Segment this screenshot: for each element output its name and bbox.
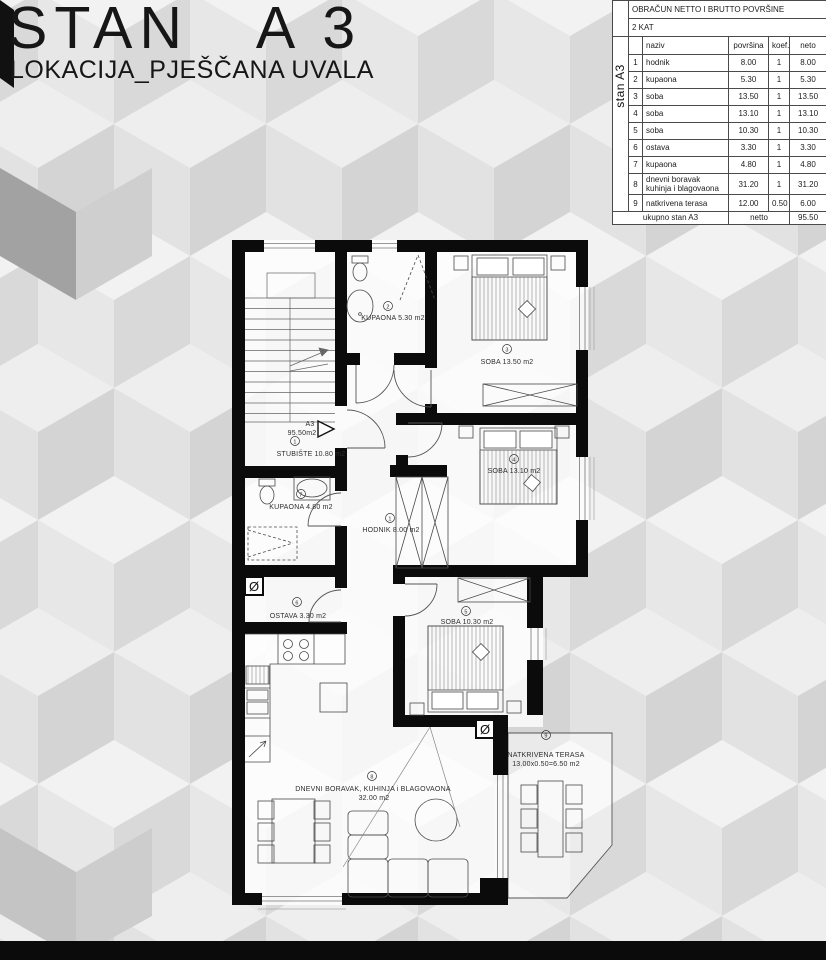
room-label-hodnik: HODNIK 8.00 m2 (362, 527, 419, 534)
room-label-kupaona2: KUPAONA 5.30 m2 (361, 315, 425, 322)
page: Ø Ø A3 95.50m2 1 STUBIŠTE 10.80 m2 2 KUP… (0, 0, 826, 960)
room-label-dnevni-area: 32.00 m2 (359, 795, 390, 802)
room-label-soba4: SOBA 13.10 m2 (488, 468, 541, 475)
table-row: 5soba 10.30110.30 (613, 123, 826, 140)
room-label-stubiste: STUBIŠTE 10.80 m2 (277, 449, 346, 458)
table-row: 7kupaona 4.8014.80 (613, 157, 826, 174)
table-row: 4soba 13.10113.10 (613, 106, 826, 123)
svg-text:2: 2 (386, 304, 389, 310)
room-label-soba5: SOBA 10.30 m2 (441, 619, 494, 626)
table-row: 1hodnik 8.0018.00 (613, 55, 826, 72)
floor-plan: Ø Ø A3 95.50m2 1 STUBIŠTE 10.80 m2 2 KUP… (230, 236, 614, 912)
table-floor: 2 KAT (629, 19, 826, 37)
table-side-label: stan A3 (613, 37, 629, 212)
room-label-terasa-area: 13.00x0.50=6.50 m2 (512, 761, 580, 768)
room-label-dnevni: DNEVNI BORAVAK, KUHINJA i BLAGOVAONA (295, 786, 451, 793)
shaft-icon: Ø (249, 579, 259, 594)
table-row: 3soba 13.50113.50 (613, 89, 826, 106)
room-label-ostava: OSTAVA 3.30 m2 (270, 613, 327, 620)
table-footer: ukupno stan A3 netto 95.50 (613, 212, 826, 224)
unit-name: A3 (306, 421, 315, 428)
col-naziv-header: naziv (643, 37, 729, 55)
table-row: 2kupaona 5.3015.30 (613, 72, 826, 89)
svg-text:6: 6 (295, 600, 298, 606)
table-row: 8dnevni boravak kuhinja i blagovaona 31.… (613, 174, 826, 195)
bottom-bar (0, 941, 826, 960)
svg-text:9: 9 (544, 733, 547, 739)
svg-text:8: 8 (370, 774, 373, 780)
page-subtitle: LOKACIJA_PJEŠČANA UVALA (10, 56, 374, 85)
col-neto-header: neto (790, 37, 826, 55)
table-row: 9natkrivena terasa 12.000.506.00 (613, 195, 826, 212)
table-corner-cell (613, 1, 629, 37)
col-num-header (629, 37, 643, 55)
svg-text:3: 3 (505, 347, 508, 353)
room-label-soba3: SOBA 13.50 m2 (481, 359, 534, 366)
room-label-kupaona7: KUPAONA 4.80 m2 (269, 504, 333, 511)
table-row: 6ostava 3.3013.30 (613, 140, 826, 157)
svg-text:7: 7 (299, 492, 302, 498)
svg-text:5: 5 (464, 609, 467, 615)
shaft-icon: Ø (480, 722, 490, 737)
col-koef-header: koef. (769, 37, 790, 55)
col-povrsina-header: površina (729, 37, 769, 55)
svg-text:1: 1 (388, 516, 391, 522)
table-title: OBRAČUN NETTO I BRUTTO POVRŠINE (629, 1, 826, 19)
page-title: STAN A 3 (8, 0, 362, 62)
area-table: OBRAČUN NETTO I BRUTTO POVRŠINE 2 KAT st… (612, 0, 826, 225)
unit-area: 95.50m2 (288, 430, 317, 437)
svg-text:1: 1 (293, 439, 296, 445)
room-label-terasa: NATKRIVENA TERASA (507, 752, 584, 759)
svg-text:4: 4 (512, 457, 515, 463)
